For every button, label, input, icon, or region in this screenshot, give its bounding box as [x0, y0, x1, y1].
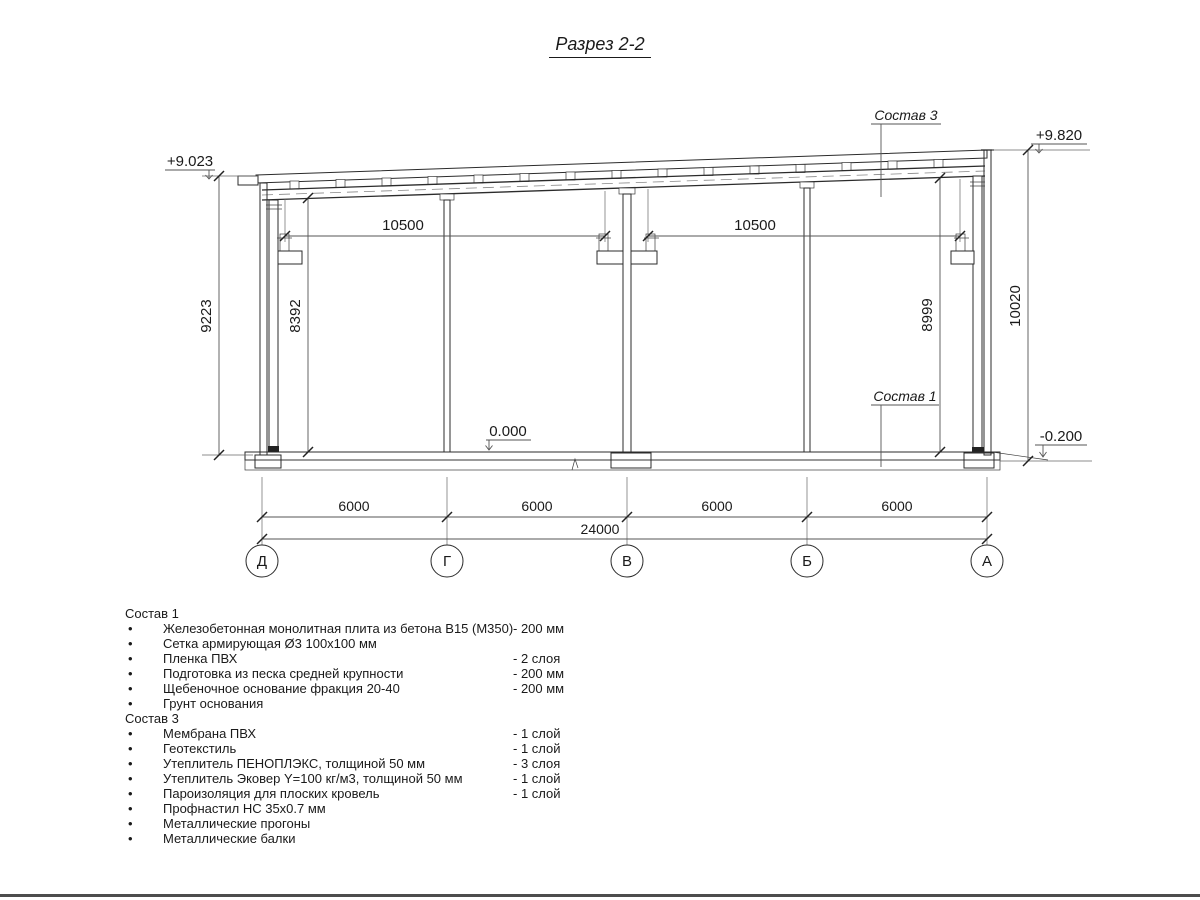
bullet-icon: •: [128, 741, 133, 756]
list-item: • Металлические балки: [125, 831, 605, 846]
dim-bay-2: 6000: [521, 498, 552, 514]
dim-bay-1: 6000: [338, 498, 369, 514]
material-name: Грунт основания: [163, 696, 263, 711]
material-quantity: - 200 мм: [513, 681, 564, 696]
dim-span-left: 10500: [382, 217, 424, 234]
axis-label-b: Б: [802, 553, 812, 570]
right-column-base-plate: [972, 447, 984, 452]
callout-floor: Состав 1: [871, 388, 939, 467]
elevation-left-top-value: +9.023: [167, 153, 213, 170]
list-item: • Пароизоляция для плоских кровель - 1 с…: [125, 786, 605, 801]
axis-bubbles: Д Г В Б А: [246, 545, 1003, 577]
callout-roof-label: Состав 3: [874, 107, 937, 123]
dim-span-right: 10500: [734, 217, 776, 234]
left-wall-panel: [260, 183, 267, 455]
comp3-header: Состав 3: [125, 711, 605, 726]
material-quantity: - 3 слоя: [513, 756, 560, 771]
elevation-floor-value: 0.000: [489, 423, 527, 440]
bullet-icon: •: [128, 666, 133, 681]
comp1-header: Состав 1: [125, 606, 605, 621]
elevation-mark-floor: 0.000: [486, 423, 532, 450]
axis-label-g: Г: [443, 553, 451, 570]
left-column: [269, 200, 278, 452]
bullet-icon: •: [128, 621, 133, 636]
list-item: • Металлические прогоны: [125, 816, 605, 831]
bullet-icon: •: [128, 696, 133, 711]
right-wall: [951, 150, 994, 455]
material-name: Утеплитель ПЕНОПЛЭКС, толщиной 50 мм: [163, 756, 425, 771]
list-item: • Мембрана ПВХ - 1 слой: [125, 726, 605, 741]
extension-lines: [202, 150, 1092, 545]
material-quantity: - 2 слоя: [513, 651, 560, 666]
dim-left-outer: 9223: [198, 299, 215, 332]
material-quantity: - 200 мм: [513, 621, 564, 636]
material-name: Подготовка из песка средней крупности: [163, 666, 403, 681]
bullet-icon: •: [128, 801, 133, 816]
bullet-icon: •: [128, 636, 133, 651]
right-column: [973, 176, 982, 452]
material-quantity: - 200 мм: [513, 666, 564, 681]
material-quantity: - 1 слой: [513, 786, 561, 801]
elevation-mark-ground: -0.200: [1035, 428, 1087, 457]
axis-label-v: В: [622, 553, 632, 570]
column-axis-v: [596, 188, 659, 453]
bullet-icon: •: [128, 651, 133, 666]
bullet-icon: •: [128, 771, 133, 786]
list-item: • Геотекстиль - 1 слой: [125, 741, 605, 756]
dim-bay-3: 6000: [701, 498, 732, 514]
material-name: Профнастил НС 35х0.7 мм: [163, 801, 326, 816]
list-item: • Подготовка из песка средней крупности …: [125, 666, 605, 681]
column-axis-g: [440, 194, 454, 452]
dim-left-inner: 8392: [287, 299, 304, 332]
page-edge-divider: [0, 894, 1200, 897]
axis-label-d: Д: [257, 553, 267, 570]
floor-slab: [245, 452, 1048, 470]
elevation-arrow-icon: [486, 440, 493, 450]
material-name: Утеплитель Эковер Y=100 кг/м3, толщиной …: [163, 771, 463, 786]
list-item: • Железобетонная монолитная плита из бет…: [125, 621, 605, 636]
elevation-arrow-icon: [1040, 445, 1047, 457]
material-name: Металлические балки: [163, 831, 295, 846]
elevation-arrow-icon: [1036, 144, 1043, 153]
material-name: Геотекстиль: [163, 741, 236, 756]
crane-bracket-right: [951, 234, 974, 264]
list-item: • Щебеночное основание фракция 20-40 - 2…: [125, 681, 605, 696]
list-item: • Пленка ПВХ - 2 слоя: [125, 651, 605, 666]
slab-break-symbol: [572, 459, 578, 470]
column-axis-b: [800, 182, 814, 452]
callout-floor-label: Состав 1: [873, 388, 936, 404]
material-name: Пароизоляция для плоских кровель: [163, 786, 380, 801]
list-item: • Грунт основания: [125, 696, 605, 711]
elevation-right-top-value: +9.820: [1036, 127, 1082, 144]
bullet-icon: •: [128, 816, 133, 831]
roof-assembly: [238, 150, 987, 200]
elevation-ground-value: -0.200: [1040, 428, 1083, 445]
elevation-arrow-icon: [206, 170, 213, 179]
dim-bay-4: 6000: [881, 498, 912, 514]
material-quantity: - 1 слой: [513, 771, 561, 786]
list-item: • Сетка армирующая Ø3 100х100 мм: [125, 636, 605, 651]
list-item: • Профнастил НС 35х0.7 мм: [125, 801, 605, 816]
bullet-icon: •: [128, 681, 133, 696]
list-item: • Утеплитель Эковер Y=100 кг/м3, толщино…: [125, 771, 605, 786]
elevation-mark-right-top: +9.820: [1031, 127, 1087, 153]
material-name: Пленка ПВХ: [163, 651, 237, 666]
drawing-sheet: Разрез 2-2: [0, 0, 1200, 900]
material-quantity: - 1 слой: [513, 726, 561, 741]
elevation-mark-left-top: +9.023: [165, 153, 215, 179]
crane-bracket-middle-left: [596, 234, 623, 264]
right-wall-panel: [984, 150, 991, 455]
material-quantity: - 1 слой: [513, 741, 561, 756]
bullet-icon: •: [128, 786, 133, 801]
composition-notes: Состав 1 • Железобетонная монолитная пли…: [125, 606, 605, 846]
dim-right-inner: 8999: [919, 298, 936, 331]
left-column-base-plate: [268, 446, 279, 452]
foundation-pad-left: [255, 455, 281, 468]
roof-edge-flashing: [238, 176, 258, 185]
list-item: • Утеплитель ПЕНОПЛЭКС, толщиной 50 мм -…: [125, 756, 605, 771]
material-name: Мембрана ПВХ: [163, 726, 256, 741]
material-name: Сетка армирующая Ø3 100х100 мм: [163, 636, 377, 651]
material-name: Металлические прогоны: [163, 816, 310, 831]
dim-total: 24000: [581, 521, 620, 537]
bullet-icon: •: [128, 726, 133, 741]
material-name: Железобетонная монолитная плита из бетон…: [163, 621, 513, 636]
bullet-icon: •: [128, 756, 133, 771]
bullet-icon: •: [128, 831, 133, 846]
axis-label-a: А: [982, 553, 992, 570]
material-name: Щебеночное основание фракция 20-40: [163, 681, 400, 696]
dim-right-outer: 10020: [1007, 285, 1024, 327]
roof-purlins: [290, 160, 943, 190]
crane-bracket-left: [277, 234, 302, 264]
